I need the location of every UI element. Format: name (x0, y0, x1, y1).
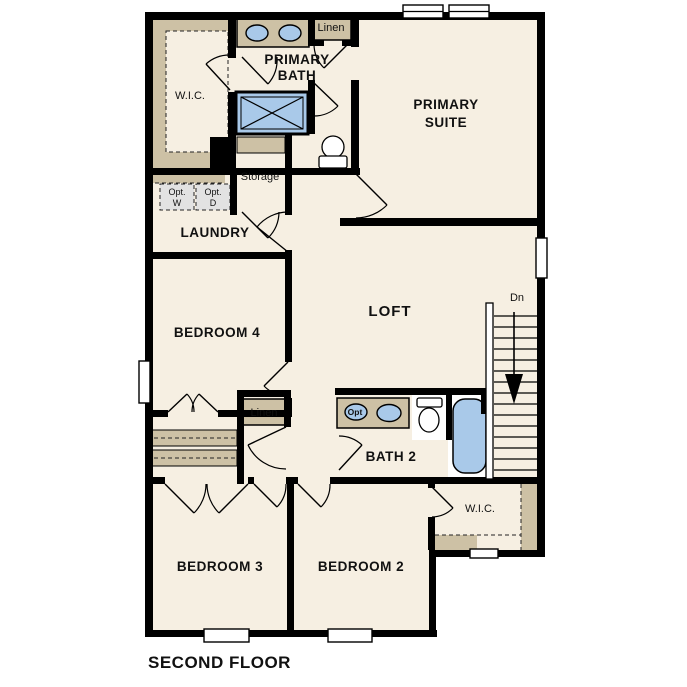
stairs-down-label: Dn (510, 292, 524, 304)
primary-suite-window-right (449, 5, 489, 18)
storage-label: Storage (241, 171, 280, 183)
floor-plan-canvas: W.I.C. PRIMARY BATH Linen PRIMARY SUITE … (0, 0, 687, 687)
primary-suite-label-2: SUITE (425, 115, 467, 130)
bedroom2-label: BEDROOM 2 (318, 559, 404, 574)
opt-washer-label-2: W (173, 198, 182, 208)
storage-shelf (237, 137, 285, 153)
linen-upper-label: Linen (318, 22, 345, 34)
floor-title: SECOND FLOOR (148, 653, 291, 672)
laundry-label: LAUNDRY (181, 225, 250, 240)
opt-dryer-label-2: D (210, 198, 217, 208)
bath2-sink (377, 405, 401, 422)
wic2-shelf-right (521, 484, 537, 550)
primary-toilet (319, 136, 347, 168)
stair-railing (486, 303, 493, 479)
second-floor-plan: W.I.C. PRIMARY BATH Linen PRIMARY SUITE … (0, 0, 687, 687)
bedroom3-label: BEDROOM 3 (177, 559, 263, 574)
primary-sink-left (246, 25, 268, 41)
primary-wic-label: W.I.C. (175, 90, 205, 102)
primary-suite-window-left (403, 5, 443, 18)
primary-shower (236, 92, 308, 134)
wic2-shelf-bottom (435, 535, 477, 550)
opt-sink-label: Opt (348, 407, 363, 417)
opt-dryer-label-1: Opt. (204, 187, 221, 197)
opt-washer-label-1: Opt. (168, 187, 185, 197)
bath2-label: BATH 2 (366, 449, 417, 464)
primary-suite-label-1: PRIMARY (413, 97, 478, 112)
loft-label: LOFT (368, 303, 411, 320)
bedroom3-window (204, 629, 249, 642)
primary-sink-right (279, 25, 301, 41)
bedroom4-window (139, 361, 150, 403)
primary-bath-label-2: BATH (278, 68, 317, 83)
loft-window (536, 238, 547, 278)
linen-lower-label: Linen (251, 407, 278, 419)
bedroom2-window (328, 629, 372, 642)
bedroom4-label: BEDROOM 4 (174, 325, 260, 340)
wic2-window (470, 549, 498, 558)
wic2-label: W.I.C. (465, 503, 495, 515)
laundry-shelf (153, 175, 225, 183)
primary-bath-label-1: PRIMARY (264, 52, 329, 67)
